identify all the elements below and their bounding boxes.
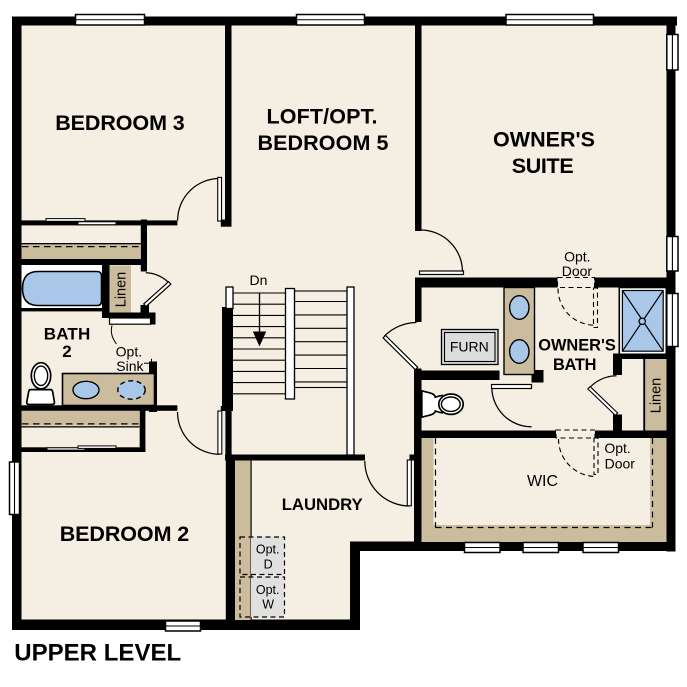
svg-text:Opt.: Opt. [604,440,630,456]
svg-text:W: W [262,598,274,612]
svg-text:BEDROOM 5: BEDROOM 5 [258,131,389,155]
svg-text:WIC: WIC [527,473,558,490]
svg-text:SUITE: SUITE [512,154,574,178]
svg-text:Linen: Linen [114,272,130,307]
svg-text:UPPER LEVEL: UPPER LEVEL [14,640,181,667]
svg-text:Sink: Sink [116,358,144,374]
svg-text:Opt.: Opt. [564,248,590,264]
svg-text:BEDROOM 2: BEDROOM 2 [60,522,190,546]
svg-text:2: 2 [62,342,71,361]
svg-text:LAUNDRY: LAUNDRY [282,495,363,514]
svg-text:BATH: BATH [553,356,597,374]
svg-text:D: D [264,557,273,571]
svg-text:OWNER'S: OWNER'S [538,337,616,355]
svg-text:Opt.: Opt. [116,344,142,360]
svg-text:Opt.: Opt. [256,543,280,557]
svg-text:LOFT/OPT.: LOFT/OPT. [267,105,378,129]
svg-text:Linen: Linen [649,378,665,413]
svg-text:BATH: BATH [44,325,91,344]
svg-text:Door: Door [562,263,593,279]
svg-text:BEDROOM 3: BEDROOM 3 [55,111,185,135]
svg-text:FURN: FURN [450,338,489,354]
svg-text:Opt.: Opt. [256,583,280,597]
svg-text:Dn: Dn [250,272,268,288]
svg-text:Door: Door [605,456,636,472]
svg-text:OWNER'S: OWNER'S [493,128,595,152]
